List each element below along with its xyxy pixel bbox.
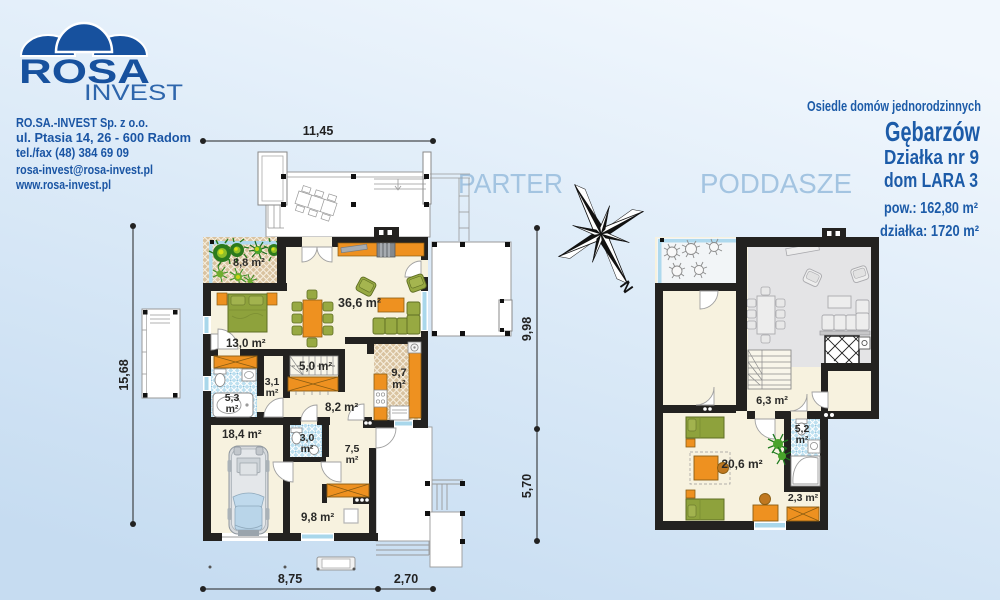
svg-text:8,75: 8,75	[278, 572, 302, 586]
svg-text:dom LARA 3: dom LARA 3	[884, 170, 978, 192]
svg-text:m²: m²	[266, 387, 279, 399]
svg-text:18,4 m²: 18,4 m²	[222, 429, 262, 441]
svg-text:INVEST: INVEST	[84, 80, 183, 105]
svg-text:Osiedle domów jednorodzinnych: Osiedle domów jednorodzinnych	[807, 98, 981, 115]
svg-text:9,7: 9,7	[391, 367, 406, 379]
svg-text:www.rosa-invest.pl: www.rosa-invest.pl	[15, 177, 111, 192]
svg-text:RO.SA.-INVEST Sp. z o.o.: RO.SA.-INVEST Sp. z o.o.	[16, 115, 148, 130]
svg-text:ul. Ptasia 14, 26 - 600 Radom: ul. Ptasia 14, 26 - 600 Radom	[16, 130, 191, 145]
svg-text:2,3 m²: 2,3 m²	[788, 492, 819, 504]
svg-text:tel./fax (48) 384 69 09: tel./fax (48) 384 69 09	[16, 145, 129, 160]
svg-text:rosa-invest@rosa-invest.pl: rosa-invest@rosa-invest.pl	[16, 162, 153, 177]
svg-text:pow.: 162,80 m²: pow.: 162,80 m²	[884, 200, 978, 217]
svg-text:8,8 m²: 8,8 m²	[233, 257, 265, 269]
svg-text:m²: m²	[796, 434, 809, 446]
svg-text:PODDASZE: PODDASZE	[700, 168, 852, 199]
svg-text:13,0 m²: 13,0 m²	[226, 338, 266, 350]
svg-text:9,8 m²: 9,8 m²	[301, 512, 334, 524]
svg-text:15,68: 15,68	[117, 359, 131, 390]
svg-text:Działka nr 9: Działka nr 9	[884, 147, 979, 169]
svg-text:działka: 1720 m²: działka: 1720 m²	[880, 223, 979, 240]
svg-text:36,6 m²: 36,6 m²	[338, 296, 381, 310]
svg-text:2,70: 2,70	[394, 572, 418, 586]
svg-text:5,0 m²: 5,0 m²	[299, 361, 332, 373]
svg-text:6,3 m²: 6,3 m²	[756, 395, 788, 407]
svg-text:9,98: 9,98	[520, 317, 534, 341]
svg-text:m²: m²	[346, 454, 359, 466]
svg-text:11,45: 11,45	[303, 124, 334, 138]
svg-text:PARTER: PARTER	[458, 168, 563, 199]
svg-text:m²: m²	[392, 379, 406, 391]
svg-text:Gębarzów: Gębarzów	[885, 116, 980, 147]
svg-text:5,70: 5,70	[520, 474, 534, 498]
svg-text:8,2 m²: 8,2 m²	[325, 402, 358, 414]
svg-text:20,6 m²: 20,6 m²	[721, 457, 762, 471]
svg-text:m²: m²	[301, 443, 314, 455]
svg-text:m²: m²	[226, 403, 239, 415]
